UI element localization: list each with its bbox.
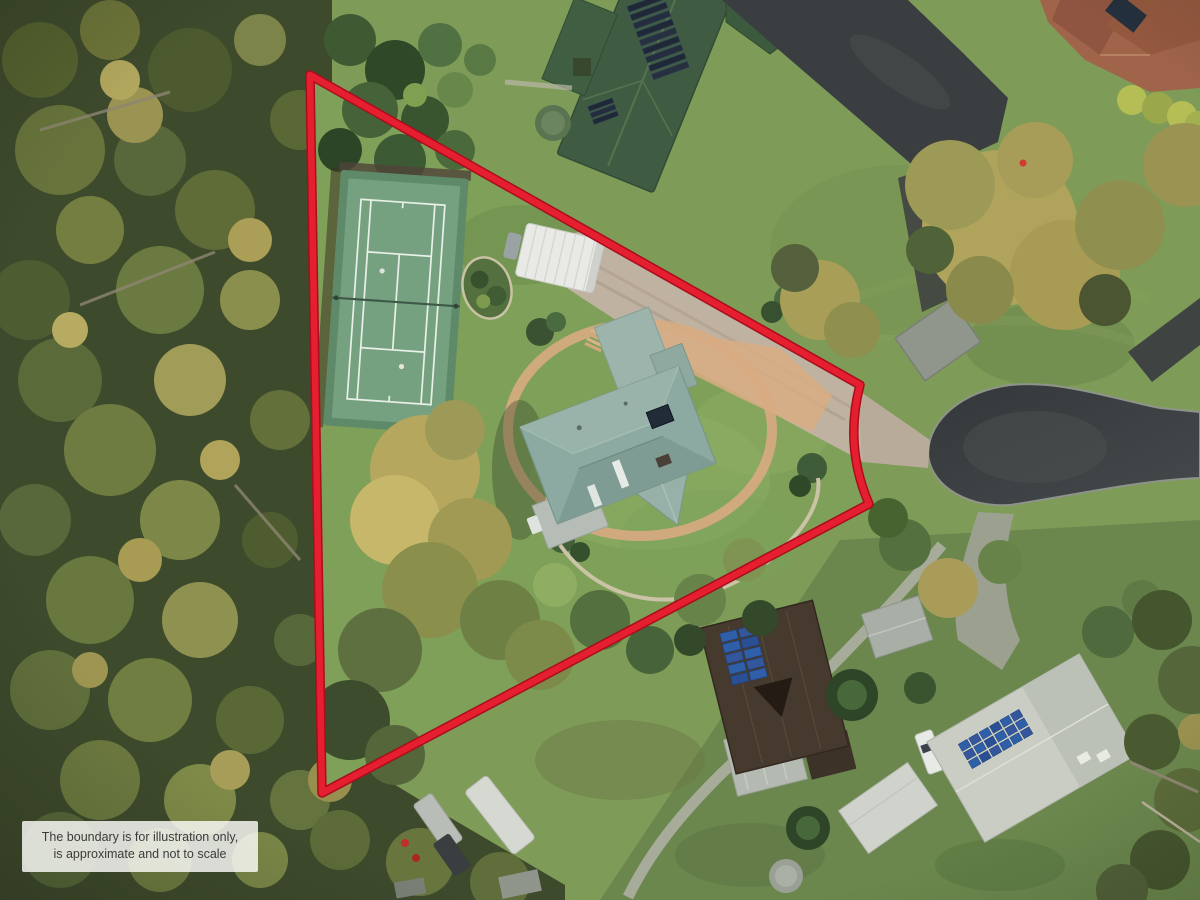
aerial-property-photo: The boundary is for illustration only, i…: [0, 0, 1200, 900]
boundary-disclaimer: The boundary is for illustration only, i…: [22, 821, 258, 872]
aerial-scene: [0, 0, 1200, 900]
disclaimer-line-2: is approximate and not to scale: [28, 846, 252, 863]
photo-vignette: [0, 0, 1200, 900]
disclaimer-line-1: The boundary is for illustration only,: [28, 829, 252, 846]
